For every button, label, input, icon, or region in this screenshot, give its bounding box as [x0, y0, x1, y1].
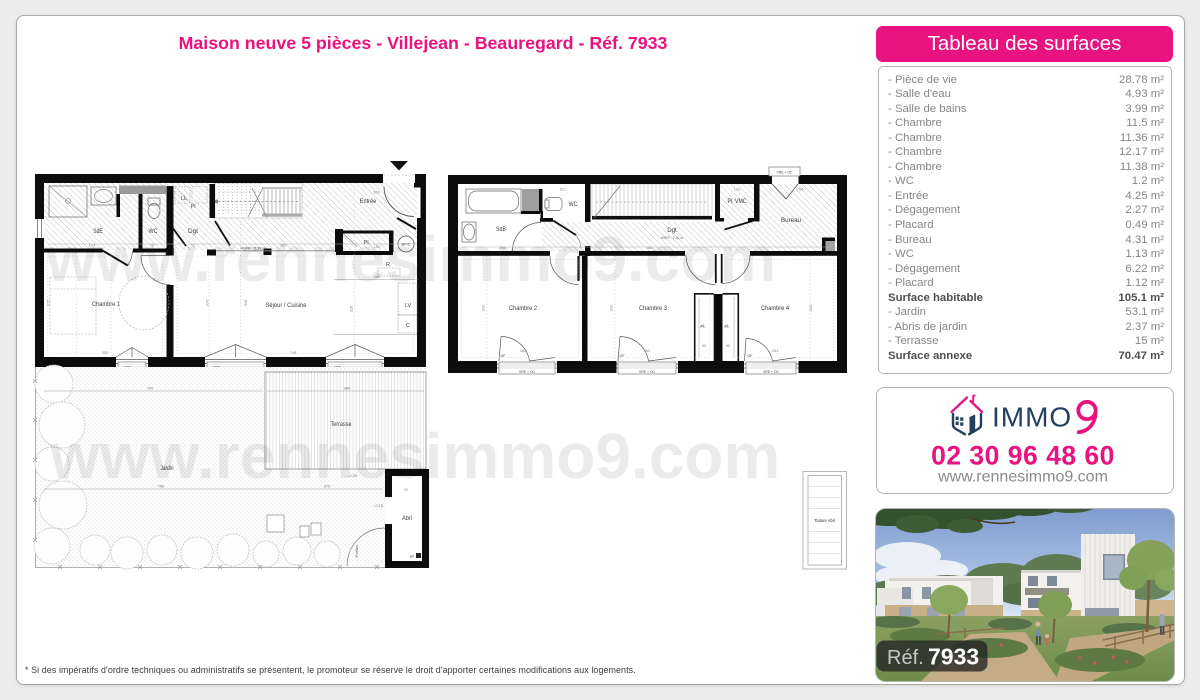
svg-text:Pl: Pl: [191, 204, 196, 210]
svg-text:254: 254: [797, 187, 804, 192]
svg-text:318: 318: [243, 299, 248, 306]
svg-text:www.rennesimmo9.com: www.rennesimmo9.com: [45, 223, 776, 295]
svg-text:355: 355: [102, 350, 109, 355]
svg-text:02 30 96 48 60: 02 30 96 48 60: [931, 441, 1115, 471]
svg-text:980: 980: [344, 386, 351, 391]
svg-text:Bureau: Bureau: [781, 217, 801, 224]
svg-text:260: 260: [373, 190, 380, 195]
svg-text:Séjour / Cuisine: Séjour / Cuisine: [266, 302, 307, 309]
svg-text:C: C: [406, 323, 410, 329]
svg-text:521: 521: [560, 187, 567, 192]
svg-text:318: 318: [349, 305, 354, 312]
svg-text:310: 310: [609, 304, 614, 311]
svg-text:310: 310: [808, 304, 813, 311]
svg-text:Toiture Abri: Toiture Abri: [814, 518, 835, 523]
svg-text:LL: LL: [181, 196, 187, 202]
svg-text:www.rennesimmo9.com: www.rennesimmo9.com: [937, 469, 1108, 486]
svg-text:Abri: Abri: [402, 516, 412, 522]
svg-text:VRE + OC: VRE + OC: [639, 370, 655, 374]
svg-text:700: 700: [147, 386, 154, 391]
svg-text:Pl. VMC: Pl. VMC: [728, 198, 747, 205]
svg-text:VRE + OC: VRE + OC: [777, 171, 793, 175]
svg-text:Entrée: Entrée: [360, 198, 377, 205]
svg-text:IMMO: IMMO: [992, 402, 1072, 433]
svg-text:VRE + OC: VRE + OC: [519, 370, 535, 374]
svg-text:748: 748: [290, 350, 297, 355]
svg-text:7933: 7933: [928, 644, 979, 670]
svg-text:Chambre 4: Chambre 4: [761, 305, 789, 312]
svg-text:Réf.: Réf.: [887, 647, 924, 669]
svg-text:WC: WC: [569, 201, 578, 208]
svg-text:360: 360: [644, 348, 651, 353]
svg-text:90: 90: [726, 343, 731, 348]
svg-text:Chambre 3: Chambre 3: [639, 305, 667, 312]
svg-text:Pl.: Pl.: [724, 324, 729, 329]
svg-text:120: 120: [734, 187, 741, 192]
svg-text:310: 310: [481, 304, 486, 311]
svg-text:265: 265: [520, 348, 527, 353]
svg-text:90: 90: [702, 343, 707, 348]
svg-text:VRE + OC: VRE + OC: [763, 370, 779, 374]
svg-text:Chambre 2: Chambre 2: [509, 305, 537, 312]
svg-text:EP: EP: [410, 555, 414, 559]
svg-text:www.rennesimmo9.com: www.rennesimmo9.com: [49, 420, 780, 492]
svg-text:- 0,15: - 0,15: [373, 503, 384, 508]
svg-text:254: 254: [772, 348, 779, 353]
svg-text:Portillon: Portillon: [355, 545, 359, 558]
svg-text:Pl.: Pl.: [700, 324, 705, 329]
svg-text:LV: LV: [405, 303, 412, 309]
